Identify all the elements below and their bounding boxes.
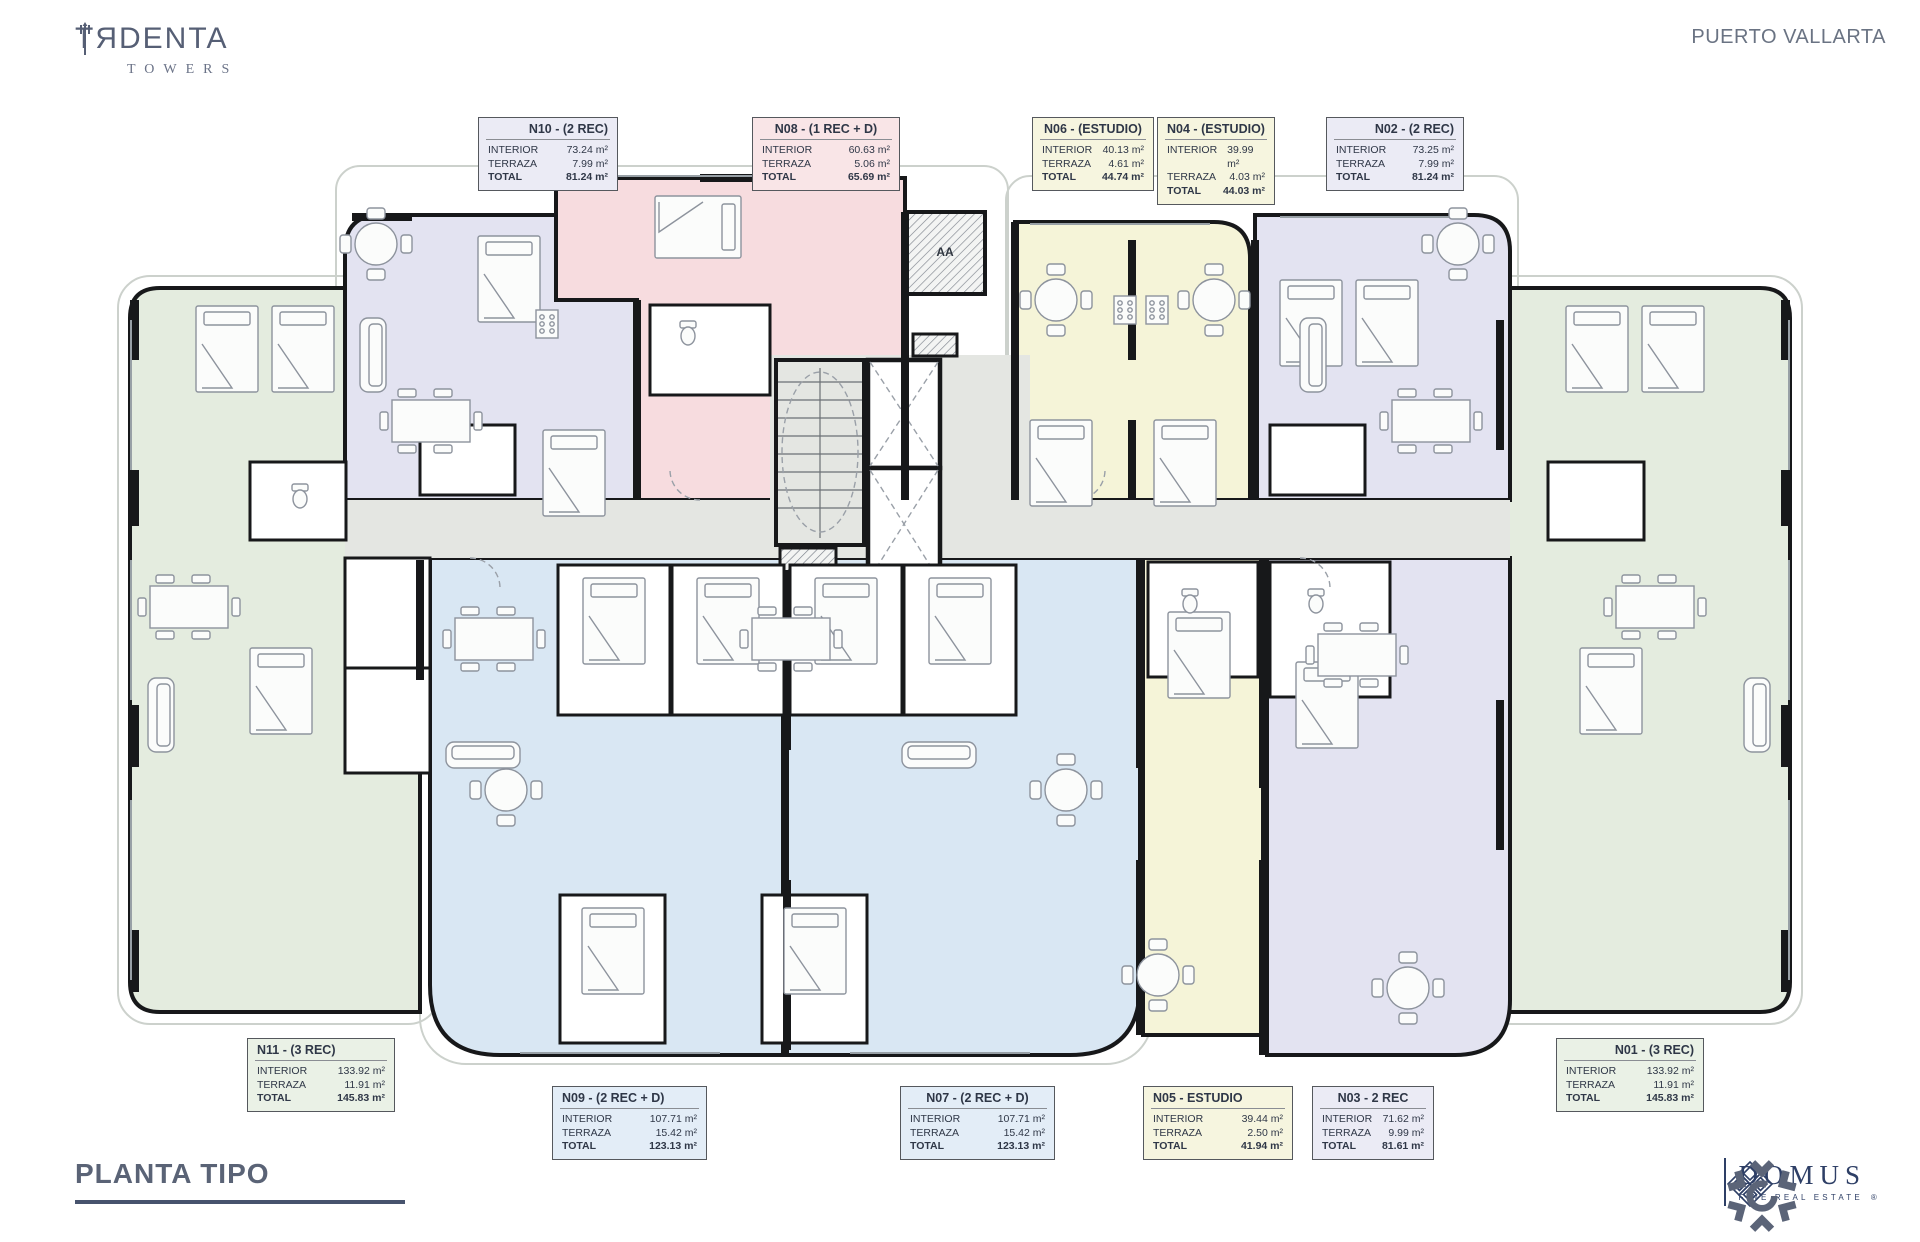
interior-value: 60.63 m² xyxy=(849,144,890,158)
unit-interior-row: INTERIOR 73.24 m² xyxy=(486,144,610,158)
domus-reg-mark: ® xyxy=(1871,1193,1880,1202)
total-label: TOTAL xyxy=(1167,185,1201,199)
unit-interior-row: INTERIOR 71.62 m² xyxy=(1320,1113,1426,1127)
total-value: 44.74 m² xyxy=(1102,171,1144,185)
total-value: 123.13 m² xyxy=(649,1140,697,1154)
unit-title: N06 - (ESTUDIO) xyxy=(1040,121,1146,140)
terraza-value: 9.99 m² xyxy=(1388,1127,1424,1141)
brand-logo: TЯ DENTA TOWERS xyxy=(75,22,238,78)
trident-icon xyxy=(79,22,91,56)
interior-value: 133.92 m² xyxy=(1647,1065,1694,1079)
unit-total-row: TOTAL 41.94 m² xyxy=(1151,1140,1285,1154)
unit-total-row: TOTAL 81.24 m² xyxy=(1334,171,1456,185)
total-value: 41.94 m² xyxy=(1241,1140,1283,1154)
unit-terraza-row: TERRAZA 4.03 m² xyxy=(1165,171,1267,185)
unit-terraza-row: TERRAZA 4.61 m² xyxy=(1040,158,1146,172)
unit-interior-row: INTERIOR 133.92 m² xyxy=(255,1065,387,1079)
total-label: TOTAL xyxy=(488,171,522,185)
unit-total-row: TOTAL 81.24 m² xyxy=(486,171,610,185)
total-label: TOTAL xyxy=(562,1140,596,1154)
total-label: TOTAL xyxy=(1153,1140,1187,1154)
total-value: 145.83 m² xyxy=(1646,1092,1694,1106)
unit-info-box: N11 - (3 REC) INTERIOR 133.92 m² TERRAZA… xyxy=(247,1038,395,1112)
unit-info-box: N01 - (3 REC) INTERIOR 133.92 m² TERRAZA… xyxy=(1556,1038,1704,1112)
unit-total-row: TOTAL 44.03 m² xyxy=(1165,185,1267,199)
unit-title: N04 - (ESTUDIO) xyxy=(1165,121,1267,140)
unit-interior-row: INTERIOR 133.92 m² xyxy=(1564,1065,1696,1079)
unit-total-row: TOTAL 81.61 m² xyxy=(1320,1140,1426,1154)
unit-interior-row: INTERIOR 39.44 m² xyxy=(1151,1113,1285,1127)
interior-label: INTERIOR xyxy=(762,144,812,158)
total-value: 123.13 m² xyxy=(997,1140,1045,1154)
terraza-label: TERRAZA xyxy=(1322,1127,1371,1141)
unit-interior-row: INTERIOR 73.25 m² xyxy=(1334,144,1456,158)
interior-label: INTERIOR xyxy=(1167,144,1217,171)
terraza-value: 4.03 m² xyxy=(1229,171,1265,185)
interior-label: INTERIOR xyxy=(1336,144,1386,158)
unit-info-box: N06 - (ESTUDIO) INTERIOR 40.13 m² TERRAZ… xyxy=(1032,117,1154,191)
interior-value: 39.99 m² xyxy=(1227,144,1265,171)
terraza-label: TERRAZA xyxy=(1042,158,1091,172)
unit-title: N08 - (1 REC + D) xyxy=(760,121,892,140)
unit-info-box: N10 - (2 REC) INTERIOR 73.24 m² TERRAZA … xyxy=(478,117,618,191)
interior-value: 39.44 m² xyxy=(1242,1113,1283,1127)
interior-label: INTERIOR xyxy=(1322,1113,1372,1127)
unit-terraza-row: TERRAZA 15.42 m² xyxy=(560,1127,699,1141)
terraza-value: 11.91 m² xyxy=(1653,1079,1694,1093)
location-label: PUERTO VALLARTA xyxy=(1691,26,1886,49)
unit-info-box: N03 - 2 REC INTERIOR 71.62 m² TERRAZA 9.… xyxy=(1312,1086,1434,1160)
interior-label: INTERIOR xyxy=(562,1113,612,1127)
interior-label: INTERIOR xyxy=(910,1113,960,1127)
terraza-value: 11.91 m² xyxy=(344,1079,385,1093)
unit-terraza-row: TERRAZA 9.99 m² xyxy=(1320,1127,1426,1141)
unit-terraza-row: TERRAZA 5.06 m² xyxy=(760,158,892,172)
unit-title: N01 - (3 REC) xyxy=(1564,1042,1696,1061)
page: AA xyxy=(0,0,1920,1242)
terraza-label: TERRAZA xyxy=(1566,1079,1615,1093)
unit-terraza-row: TERRAZA 7.99 m² xyxy=(486,158,610,172)
unit-title: N11 - (3 REC) xyxy=(255,1042,387,1061)
interior-label: INTERIOR xyxy=(1042,144,1092,158)
brand-subtitle: TOWERS xyxy=(127,62,238,78)
terraza-value: 5.06 m² xyxy=(854,158,890,172)
interior-value: 107.71 m² xyxy=(998,1113,1045,1127)
total-label: TOTAL xyxy=(1042,171,1076,185)
unit-title: N02 - (2 REC) xyxy=(1334,121,1456,140)
terraza-label: TERRAZA xyxy=(1153,1127,1202,1141)
terraza-value: 2.50 m² xyxy=(1247,1127,1283,1141)
unit-info-box: N04 - (ESTUDIO) INTERIOR 39.99 m² TERRAZ… xyxy=(1157,117,1275,205)
unit-title: N09 - (2 REC + D) xyxy=(560,1090,699,1109)
interior-label: INTERIOR xyxy=(1153,1113,1203,1127)
interior-value: 40.13 m² xyxy=(1103,144,1144,158)
unit-total-row: TOTAL 145.83 m² xyxy=(1564,1092,1696,1106)
unit-title: N07 - (2 REC + D) xyxy=(908,1090,1047,1109)
total-value: 81.61 m² xyxy=(1382,1140,1424,1154)
plan-title-underline xyxy=(75,1200,405,1204)
terraza-label: TERRAZA xyxy=(762,158,811,172)
brand-wordmark: TЯ DENTA xyxy=(75,22,238,56)
unit-terraza-row: TERRAZA 11.91 m² xyxy=(1564,1079,1696,1093)
interior-value: 73.25 m² xyxy=(1413,144,1454,158)
unit-terraza-row: TERRAZA 15.42 m² xyxy=(908,1127,1047,1141)
interior-value: 107.71 m² xyxy=(650,1113,697,1127)
unit-terraza-row: TERRAZA 2.50 m² xyxy=(1151,1127,1285,1141)
terraza-label: TERRAZA xyxy=(1336,158,1385,172)
total-value: 65.69 m² xyxy=(848,171,890,185)
unit-info-box: N02 - (2 REC) INTERIOR 73.25 m² TERRAZA … xyxy=(1326,117,1464,191)
total-label: TOTAL xyxy=(910,1140,944,1154)
interior-value: 73.24 m² xyxy=(567,144,608,158)
unit-total-row: TOTAL 145.83 m² xyxy=(255,1092,387,1106)
terraza-label: TERRAZA xyxy=(1167,171,1216,185)
plan-title-block: PLANTA TIPO xyxy=(75,1158,405,1204)
unit-total-row: TOTAL 123.13 m² xyxy=(908,1140,1047,1154)
unit-info-box: N07 - (2 REC + D) INTERIOR 107.71 m² TER… xyxy=(900,1086,1055,1160)
total-label: TOTAL xyxy=(1566,1092,1600,1106)
interior-value: 133.92 m² xyxy=(338,1065,385,1079)
total-label: TOTAL xyxy=(1322,1140,1356,1154)
terraza-value: 7.99 m² xyxy=(1418,158,1454,172)
interior-label: INTERIOR xyxy=(1566,1065,1616,1079)
unit-title: N05 - ESTUDIO xyxy=(1151,1090,1285,1109)
unit-info-box: N08 - (1 REC + D) INTERIOR 60.63 m² TERR… xyxy=(752,117,900,191)
total-label: TOTAL xyxy=(257,1092,291,1106)
total-label: TOTAL xyxy=(1336,171,1370,185)
total-value: 145.83 m² xyxy=(337,1092,385,1106)
footer-logos: DOMUS FINE REAL ESTATE ® xyxy=(1724,1158,1880,1206)
unit-interior-row: INTERIOR 40.13 m² xyxy=(1040,144,1146,158)
unit-total-row: TOTAL 44.74 m² xyxy=(1040,171,1146,185)
unit-box-layer: N10 - (2 REC) INTERIOR 73.24 m² TERRAZA … xyxy=(0,0,1920,1242)
unit-interior-row: INTERIOR 107.71 m² xyxy=(560,1113,699,1127)
unit-title: N10 - (2 REC) xyxy=(486,121,610,140)
terraza-label: TERRAZA xyxy=(488,158,537,172)
terraza-value: 15.42 m² xyxy=(656,1127,697,1141)
emblem-logo xyxy=(1724,1158,1800,1234)
total-value: 81.24 m² xyxy=(566,171,608,185)
total-value: 44.03 m² xyxy=(1223,185,1265,199)
unit-terraza-row: TERRAZA 7.99 m² xyxy=(1334,158,1456,172)
total-label: TOTAL xyxy=(762,171,796,185)
terraza-value: 15.42 m² xyxy=(1004,1127,1045,1141)
unit-title: N03 - 2 REC xyxy=(1320,1090,1426,1109)
terraza-label: TERRAZA xyxy=(910,1127,959,1141)
unit-total-row: TOTAL 65.69 m² xyxy=(760,171,892,185)
plan-title: PLANTA TIPO xyxy=(75,1158,405,1190)
interior-label: INTERIOR xyxy=(257,1065,307,1079)
terraza-value: 4.61 m² xyxy=(1108,158,1144,172)
unit-interior-row: INTERIOR 60.63 m² xyxy=(760,144,892,158)
total-value: 81.24 m² xyxy=(1412,171,1454,185)
unit-terraza-row: TERRAZA 11.91 m² xyxy=(255,1079,387,1093)
terraza-label: TERRAZA xyxy=(257,1079,306,1093)
interior-label: INTERIOR xyxy=(488,144,538,158)
terraza-value: 7.99 m² xyxy=(572,158,608,172)
unit-total-row: TOTAL 123.13 m² xyxy=(560,1140,699,1154)
interior-value: 71.62 m² xyxy=(1383,1113,1424,1127)
unit-info-box: N05 - ESTUDIO INTERIOR 39.44 m² TERRAZA … xyxy=(1143,1086,1293,1160)
unit-info-box: N09 - (2 REC + D) INTERIOR 107.71 m² TER… xyxy=(552,1086,707,1160)
terraza-label: TERRAZA xyxy=(562,1127,611,1141)
unit-interior-row: INTERIOR 107.71 m² xyxy=(908,1113,1047,1127)
brand-part2: DENTA xyxy=(119,22,228,56)
unit-interior-row: INTERIOR 39.99 m² xyxy=(1165,144,1267,171)
